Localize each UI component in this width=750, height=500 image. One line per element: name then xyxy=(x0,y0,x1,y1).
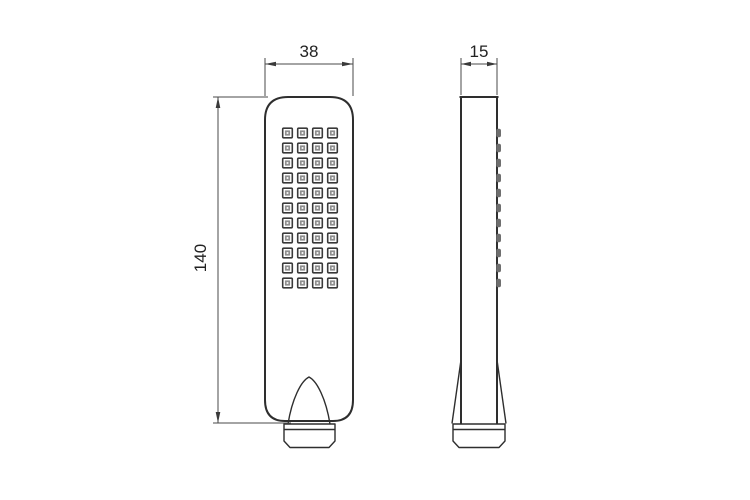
arrowhead-right xyxy=(342,62,353,67)
side-body-outline xyxy=(461,97,497,424)
front-inlet-cone xyxy=(288,377,330,424)
nozzle-dot xyxy=(287,282,289,284)
side-nozzle-bump xyxy=(496,174,501,182)
side-nozzle-bump xyxy=(496,159,501,167)
nozzle-dot xyxy=(287,147,289,149)
side-nozzle-bump xyxy=(496,219,501,227)
nozzle-dot xyxy=(332,132,334,134)
nozzle-dot xyxy=(287,222,289,224)
nozzle-dot xyxy=(332,207,334,209)
nozzle-dot xyxy=(317,192,319,194)
side-view xyxy=(452,97,506,448)
nozzle-dot xyxy=(317,222,319,224)
nozzle-dot xyxy=(302,267,304,269)
side-nozzle-bump xyxy=(496,264,501,272)
nozzle-grid xyxy=(283,128,338,288)
nozzle-dot xyxy=(287,267,289,269)
front-connector-nut xyxy=(284,424,335,448)
side-nozzle-bump xyxy=(496,249,501,257)
nozzle-dot xyxy=(287,237,289,239)
nozzle-dot xyxy=(332,252,334,254)
nozzle-dot xyxy=(332,267,334,269)
nozzle-dot xyxy=(317,177,319,179)
nozzle-dot xyxy=(302,222,304,224)
nozzle-dot xyxy=(317,267,319,269)
nozzle-dot xyxy=(317,162,319,164)
side-nozzle-bump xyxy=(496,279,501,287)
nozzle-dot xyxy=(302,237,304,239)
dimension-label-side-depth: 15 xyxy=(470,42,489,61)
side-nozzle-bump xyxy=(496,144,501,152)
nozzle-dot xyxy=(302,252,304,254)
nozzle-dot xyxy=(302,162,304,164)
nozzle-dot xyxy=(302,147,304,149)
nozzle-dot xyxy=(317,147,319,149)
side-nozzle-bump xyxy=(496,129,501,137)
nozzle-dot xyxy=(287,162,289,164)
nozzle-dot xyxy=(317,282,319,284)
dimension-side-depth: 15 xyxy=(461,42,497,95)
hand-shower-two-view-drawing: 38 140 15 xyxy=(0,0,750,500)
nozzle-dot xyxy=(317,252,319,254)
nozzle-dot xyxy=(332,147,334,149)
arrowhead-left xyxy=(461,62,471,67)
nozzle-dot xyxy=(332,282,334,284)
nozzle-dot xyxy=(302,132,304,134)
dimension-label-front-width: 38 xyxy=(300,42,319,61)
arrowhead-left xyxy=(265,62,276,67)
nozzle-dot xyxy=(287,177,289,179)
nozzle-dot xyxy=(302,177,304,179)
nozzle-dot xyxy=(287,132,289,134)
arrowhead-right xyxy=(487,62,497,67)
nozzle-dot xyxy=(332,177,334,179)
nozzle-dot xyxy=(332,222,334,224)
nozzle-dot xyxy=(332,237,334,239)
arrowhead-top xyxy=(216,97,221,108)
nozzle-dot xyxy=(287,252,289,254)
dimension-front-width: 38 xyxy=(265,42,353,96)
nozzle-dot xyxy=(317,132,319,134)
nozzle-dot xyxy=(332,192,334,194)
front-view xyxy=(265,97,353,448)
side-nozzle-bump xyxy=(496,234,501,242)
side-connector-nut xyxy=(453,424,505,448)
side-nozzle-bump xyxy=(496,189,501,197)
technical-drawing-canvas: 38 140 15 xyxy=(0,0,750,500)
dimension-label-height: 140 xyxy=(191,244,210,272)
nozzle-dot xyxy=(302,282,304,284)
front-body-outline xyxy=(265,97,353,421)
nozzle-dot xyxy=(287,207,289,209)
nozzle-dot xyxy=(317,237,319,239)
dimension-height: 140 xyxy=(191,97,291,423)
nozzle-dot xyxy=(317,207,319,209)
nozzle-dot xyxy=(287,192,289,194)
nozzle-dot xyxy=(332,162,334,164)
nozzle-dot xyxy=(302,207,304,209)
nozzle-dot xyxy=(302,192,304,194)
arrowhead-bottom xyxy=(216,412,221,423)
side-nozzle-bump xyxy=(496,204,501,212)
